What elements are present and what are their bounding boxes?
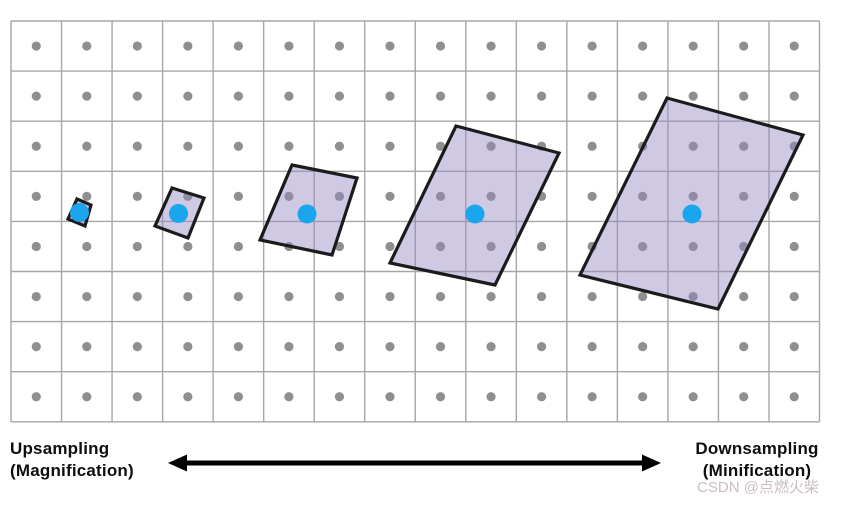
texel-dot xyxy=(284,342,293,351)
sample-point-dot xyxy=(466,205,485,224)
sampling-diagram: Upsampling (Magnification) Downsampling … xyxy=(0,0,841,509)
upsampling-label-line1: Upsampling xyxy=(10,438,134,460)
texel-dot xyxy=(82,292,91,301)
texel-dot xyxy=(790,41,799,50)
texel-dot xyxy=(133,292,142,301)
texel-dot xyxy=(436,41,445,50)
texel-dot xyxy=(284,92,293,101)
sample-point-dot xyxy=(70,203,89,222)
texel-dot xyxy=(739,92,748,101)
texel-dot xyxy=(234,342,243,351)
texel-dot xyxy=(82,192,91,201)
texel-dot xyxy=(234,392,243,401)
sample-point-dot xyxy=(169,204,188,223)
texel-dot xyxy=(537,392,546,401)
texel-dot xyxy=(588,392,597,401)
texel-dot xyxy=(385,41,394,50)
texel-dot xyxy=(133,242,142,251)
arrow-head-left xyxy=(168,455,187,472)
texel-dot xyxy=(234,242,243,251)
csdn-watermark: CSDN @点燃火柴 xyxy=(682,479,834,496)
texel-dot xyxy=(739,342,748,351)
texel-dot xyxy=(689,92,698,101)
texel-dot xyxy=(436,292,445,301)
texel-dot xyxy=(486,41,495,50)
texel-dot xyxy=(739,41,748,50)
texel-dot xyxy=(183,142,192,151)
texel-dot xyxy=(790,342,799,351)
texel-dot xyxy=(32,292,41,301)
texel-dot xyxy=(133,92,142,101)
downsampling-label: Downsampling (Minification) xyxy=(682,438,832,482)
texel-dot xyxy=(689,342,698,351)
texel-dot xyxy=(790,192,799,201)
texel-dot xyxy=(588,192,597,201)
texel-dot xyxy=(638,292,647,301)
texel-dot xyxy=(284,292,293,301)
texel-dot xyxy=(183,242,192,251)
texel-dot xyxy=(790,392,799,401)
texel-dot xyxy=(436,92,445,101)
texel-dot xyxy=(32,242,41,251)
texel-dot xyxy=(537,242,546,251)
texel-dot xyxy=(537,92,546,101)
texture-grid-canvas xyxy=(0,0,841,509)
texel-dot xyxy=(385,342,394,351)
texel-dot xyxy=(790,292,799,301)
texel-dot xyxy=(385,242,394,251)
texel-dot xyxy=(82,142,91,151)
texel-dot xyxy=(82,92,91,101)
texel-dot xyxy=(133,142,142,151)
texel-dot xyxy=(588,342,597,351)
texel-dot xyxy=(32,392,41,401)
texel-dot xyxy=(32,92,41,101)
texel-dot xyxy=(739,292,748,301)
texel-dot xyxy=(82,242,91,251)
texel-dot xyxy=(183,292,192,301)
texel-dot xyxy=(790,92,799,101)
texel-dot xyxy=(486,342,495,351)
texel-dot xyxy=(335,392,344,401)
texel-dot xyxy=(82,392,91,401)
texel-dot xyxy=(234,292,243,301)
texel-dot xyxy=(689,41,698,50)
texel-dot xyxy=(335,142,344,151)
texel-dot xyxy=(588,41,597,50)
texel-dot xyxy=(588,142,597,151)
texel-dot xyxy=(638,342,647,351)
texel-dot xyxy=(385,92,394,101)
texel-dot xyxy=(284,41,293,50)
texel-dot xyxy=(183,92,192,101)
texel-dot xyxy=(133,192,142,201)
texel-dot xyxy=(638,41,647,50)
upsampling-label: Upsampling (Magnification) xyxy=(10,438,134,482)
texel-dot xyxy=(436,392,445,401)
sample-point-dot xyxy=(298,205,317,224)
texel-dot xyxy=(335,342,344,351)
texel-dot xyxy=(385,292,394,301)
texel-dot xyxy=(133,41,142,50)
texel-dot xyxy=(385,142,394,151)
texel-dot xyxy=(284,392,293,401)
texel-dot xyxy=(284,142,293,151)
texel-dot xyxy=(739,392,748,401)
texel-dot xyxy=(183,342,192,351)
texel-dot xyxy=(638,92,647,101)
texel-dot xyxy=(183,41,192,50)
texel-dot xyxy=(335,41,344,50)
texel-dot xyxy=(183,392,192,401)
texel-dot xyxy=(234,92,243,101)
texel-dot xyxy=(486,92,495,101)
texel-dot xyxy=(385,192,394,201)
texel-dot xyxy=(82,41,91,50)
texel-dot xyxy=(32,342,41,351)
texel-dot xyxy=(335,292,344,301)
texel-dot xyxy=(588,292,597,301)
texel-dot xyxy=(588,92,597,101)
texel-dot xyxy=(32,192,41,201)
texel-dot xyxy=(234,192,243,201)
texel-dot xyxy=(32,142,41,151)
downsampling-label-line1: Downsampling xyxy=(682,438,832,460)
texel-dot xyxy=(436,342,445,351)
texel-dot xyxy=(385,392,394,401)
texel-dot xyxy=(790,242,799,251)
texel-dot xyxy=(638,392,647,401)
texel-dot xyxy=(335,92,344,101)
texel-dot xyxy=(537,41,546,50)
texel-dot xyxy=(234,41,243,50)
texel-dot xyxy=(537,292,546,301)
texel-dot xyxy=(486,392,495,401)
texel-dot xyxy=(133,392,142,401)
texel-dot xyxy=(234,142,243,151)
arrow-head-right xyxy=(642,455,661,472)
texel-dot xyxy=(82,342,91,351)
texel-dot xyxy=(689,392,698,401)
texel-dot xyxy=(133,342,142,351)
texel-dot xyxy=(32,41,41,50)
texel-dot xyxy=(486,292,495,301)
sample-point-dot xyxy=(683,205,702,224)
upsampling-label-line2: (Magnification) xyxy=(10,460,134,482)
texel-dot xyxy=(537,342,546,351)
